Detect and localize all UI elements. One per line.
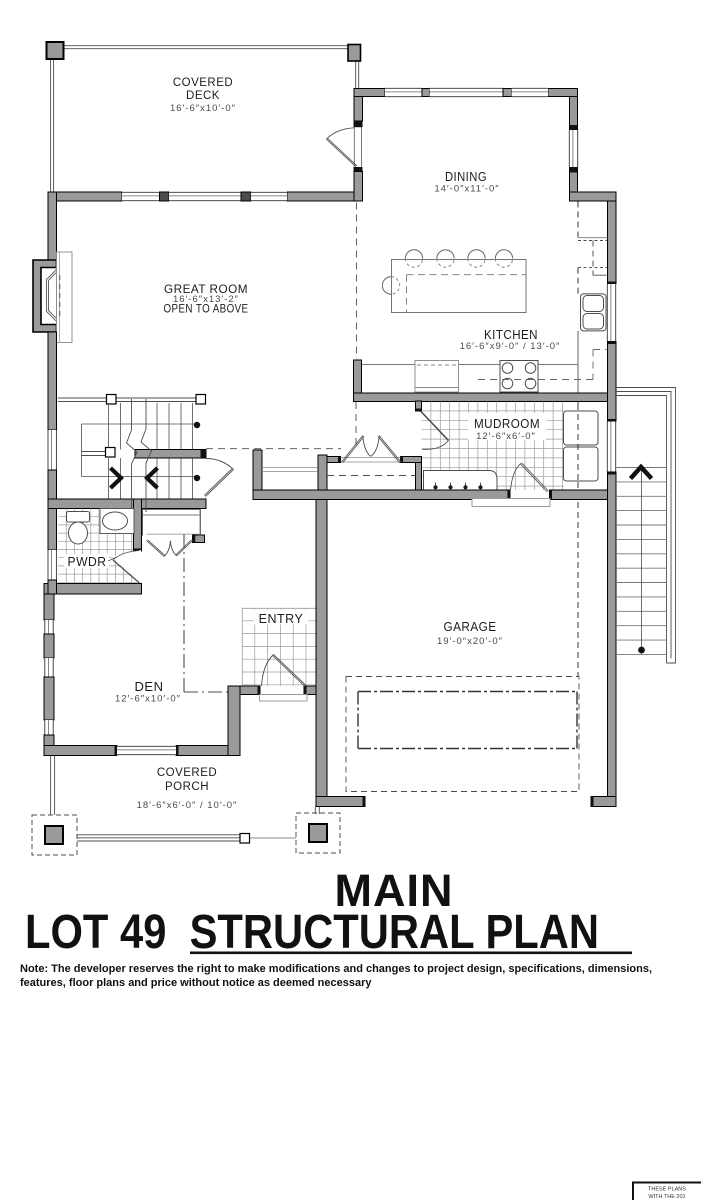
svg-text:PORCH: PORCH xyxy=(165,781,209,793)
svg-text:features, floor plans and pric: features, floor plans and price without … xyxy=(20,977,372,989)
svg-text:12′-6″x10′-0″: 12′-6″x10′-0″ xyxy=(115,694,181,705)
svg-text:ENTRY: ENTRY xyxy=(259,612,304,626)
svg-text:Note: The developer reserves: Note: The developer reserves the right t… xyxy=(20,963,652,975)
svg-text:GARAGE: GARAGE xyxy=(444,619,497,634)
svg-text:DECK: DECK xyxy=(186,90,220,102)
svg-text:DINING: DINING xyxy=(445,170,487,184)
svg-text:OPEN TO ABOVE: OPEN TO ABOVE xyxy=(164,302,249,316)
svg-text:14′-0″x11′-0″: 14′-0″x11′-0″ xyxy=(434,184,499,195)
svg-text:PWDR: PWDR xyxy=(68,555,107,569)
svg-text:DEN: DEN xyxy=(135,679,164,694)
svg-text:12′-6″x6′-0″: 12′-6″x6′-0″ xyxy=(476,431,536,442)
svg-text:COVERED: COVERED xyxy=(157,767,217,779)
svg-text:19′-0″x20′-0″: 19′-0″x20′-0″ xyxy=(437,636,503,647)
svg-text:LOT 49 STRUCTURAL PLAN: LOT 49 STRUCTURAL PLAN xyxy=(25,906,599,959)
svg-text:KITCHEN: KITCHEN xyxy=(484,328,538,342)
svg-text:MUDROOM: MUDROOM xyxy=(474,416,540,431)
svg-text:COVERED: COVERED xyxy=(173,77,233,89)
svg-text:WITH THE 201: WITH THE 201 xyxy=(648,1194,685,1200)
svg-text:THESE PLANS: THESE PLANS xyxy=(648,1187,686,1193)
svg-text:18′-6″x6′-0″ / 10′-0″: 18′-6″x6′-0″ / 10′-0″ xyxy=(137,800,238,811)
svg-text:16′-6″x9′-0″ / 13′-0″: 16′-6″x9′-0″ / 13′-0″ xyxy=(460,341,561,352)
svg-text:16′-6″x10′-0″: 16′-6″x10′-0″ xyxy=(170,103,236,114)
